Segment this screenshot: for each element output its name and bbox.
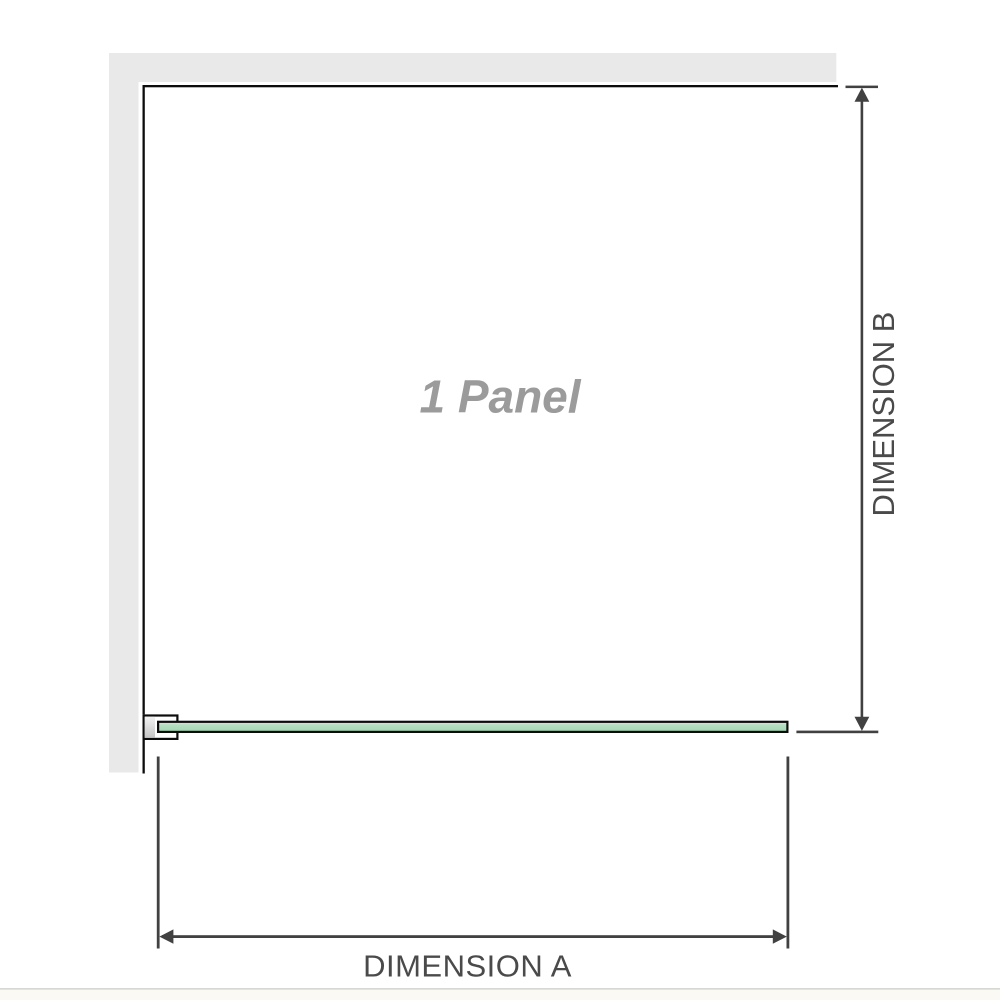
svg-text:DIMENSION A: DIMENSION A [363,948,572,983]
svg-text:1 Panel: 1 Panel [419,371,581,423]
svg-text:DIMENSION B: DIMENSION B [866,312,901,517]
